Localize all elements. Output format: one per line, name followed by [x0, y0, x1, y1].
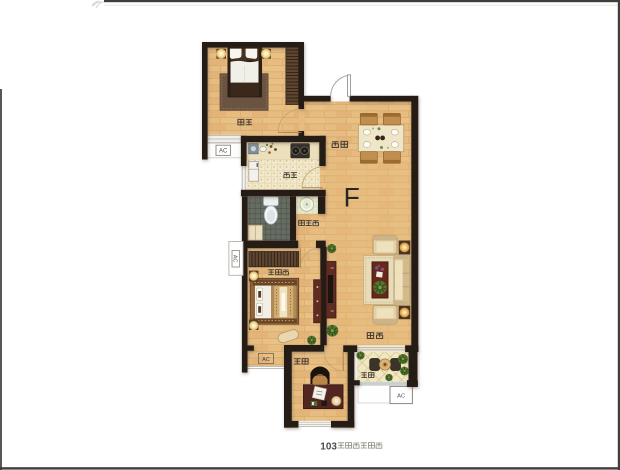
svg-text:F: F [344, 183, 360, 213]
svg-text:AC: AC [262, 357, 270, 363]
svg-text:AC: AC [219, 149, 228, 155]
svg-text:AC: AC [397, 393, 405, 399]
svg-text:AC: AC [232, 255, 238, 263]
svg-text:103: 103 [320, 441, 337, 452]
